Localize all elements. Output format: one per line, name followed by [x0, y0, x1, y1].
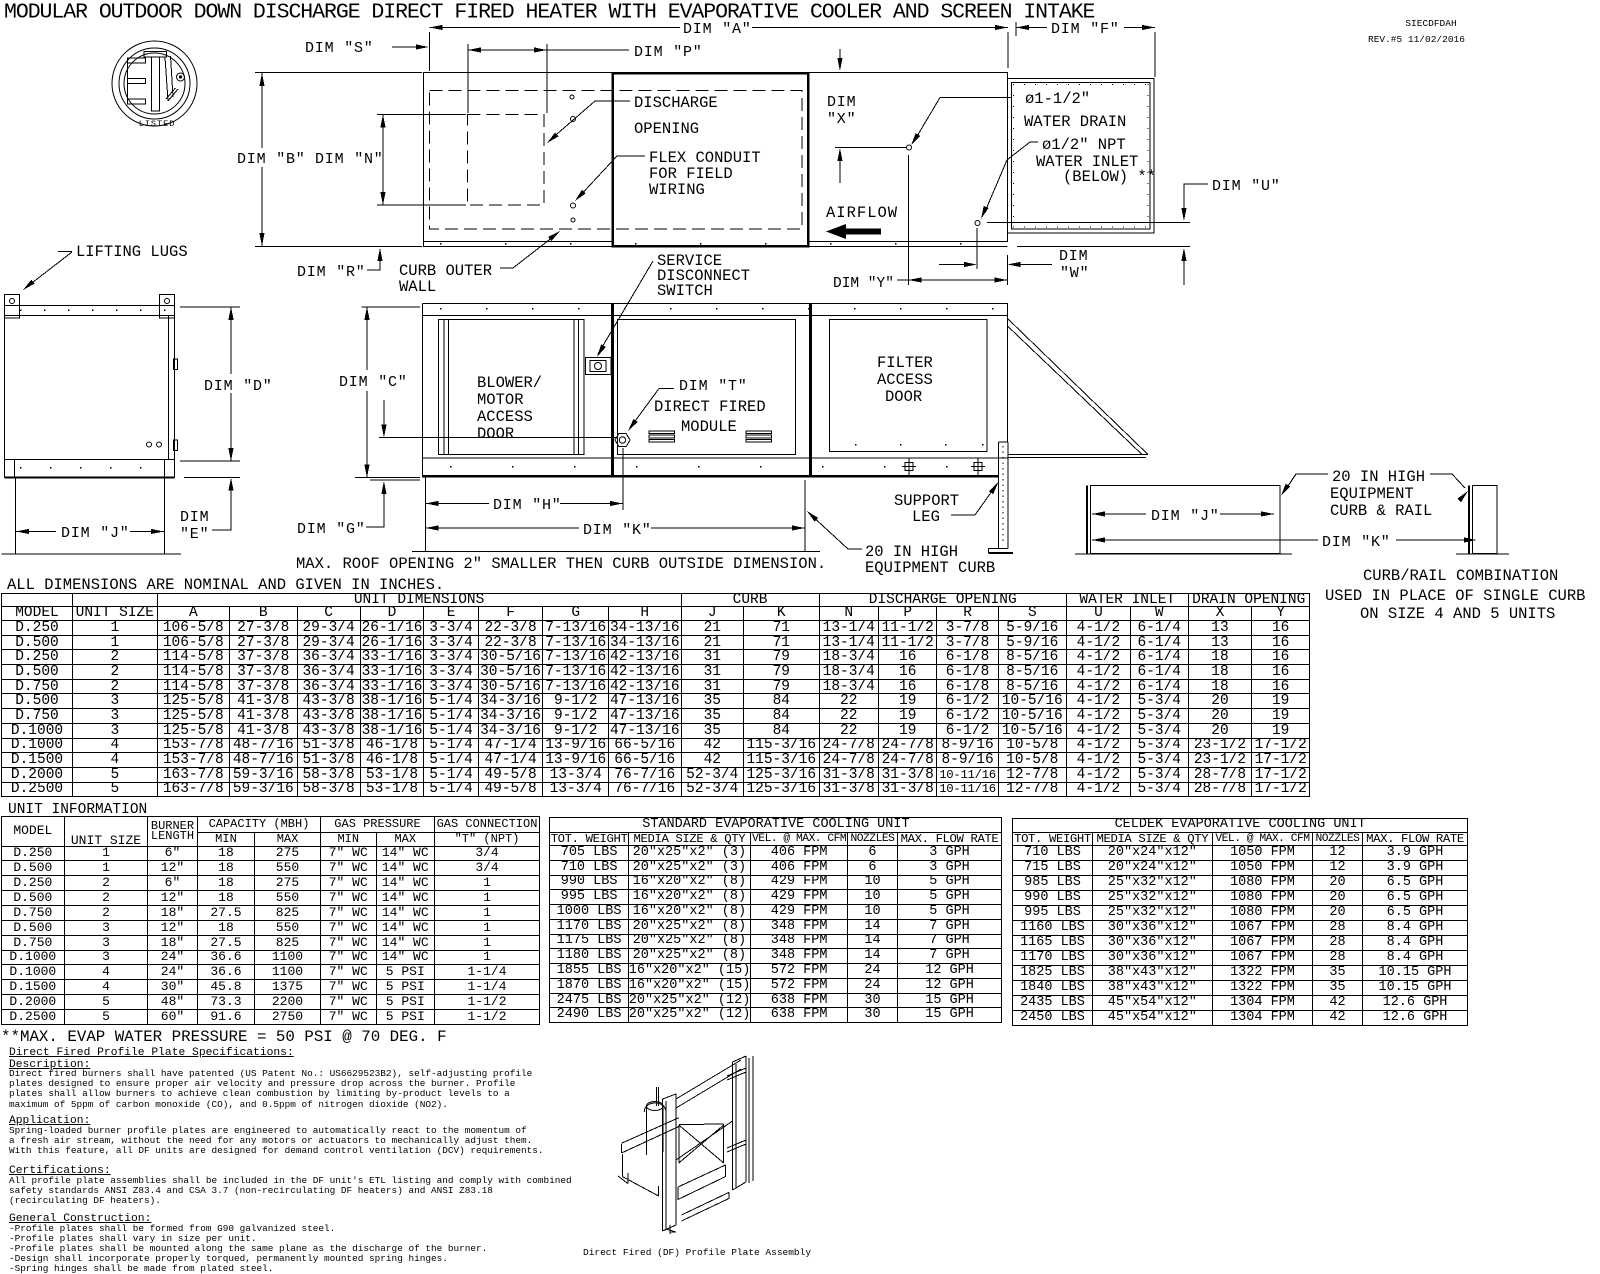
svg-text:DISCHARGE: DISCHARGE	[634, 94, 718, 112]
svg-text:REV.#5 11/02/2016: REV.#5 11/02/2016	[1368, 34, 1465, 45]
svg-text:ACCESS: ACCESS	[877, 371, 933, 389]
svg-text:DIM "A": DIM "A"	[683, 21, 752, 38]
svg-text:ø1-1/2": ø1-1/2"	[1025, 90, 1090, 108]
svg-text:Direct Fired (DF) Profile Plat: Direct Fired (DF) Profile Plate Assembly	[583, 1247, 811, 1258]
svg-text:LISTED: LISTED	[139, 119, 176, 129]
svg-text:MOTOR: MOTOR	[477, 391, 524, 409]
svg-text:DIM "J": DIM "J"	[61, 525, 130, 542]
svg-text:DIM "R": DIM "R"	[297, 264, 366, 281]
svg-text:MAX. ROOF OPENING 2" SMALLER T: MAX. ROOF OPENING 2" SMALLER THEN CURB O…	[296, 555, 826, 573]
svg-text:DOOR: DOOR	[885, 388, 922, 406]
svg-text:EQUIPMENT CURB: EQUIPMENT CURB	[865, 559, 995, 577]
svg-text:DIM: DIM	[180, 509, 209, 526]
svg-text:DIM "C": DIM "C"	[339, 374, 408, 391]
svg-text:DIM "H": DIM "H"	[493, 497, 562, 514]
svg-text:(BELOW) **: (BELOW) **	[1063, 168, 1156, 186]
svg-text:WIRING: WIRING	[649, 181, 705, 199]
svg-text:MODULE: MODULE	[681, 418, 737, 436]
svg-text:EQUIPMENT: EQUIPMENT	[1330, 485, 1414, 503]
svg-text:USED IN PLACE OF SINGLE CURB: USED IN PLACE OF SINGLE CURB	[1325, 587, 1585, 605]
svg-text:DIM "U": DIM "U"	[1212, 178, 1281, 195]
svg-text:OPENING: OPENING	[634, 120, 699, 138]
svg-text:DIM "P": DIM "P"	[634, 44, 703, 61]
svg-text:"E": "E"	[180, 526, 209, 543]
svg-text:DIM "K": DIM "K"	[583, 522, 652, 539]
svg-text:AIRFLOW: AIRFLOW	[826, 204, 898, 222]
svg-text:ALL DIMENSIONS ARE NOMINAL AND: ALL DIMENSIONS ARE NOMINAL AND GIVEN IN …	[7, 576, 444, 594]
svg-text:DIM "N": DIM "N"	[315, 151, 384, 168]
svg-text:WATER DRAIN: WATER DRAIN	[1024, 113, 1126, 131]
svg-text:FILTER: FILTER	[877, 354, 933, 372]
svg-text:DIM "F": DIM "F"	[1051, 21, 1120, 38]
svg-text:SWITCH: SWITCH	[657, 282, 713, 300]
svg-text:DIM "Y": DIM "Y"	[833, 276, 894, 292]
svg-text:"W": "W"	[1060, 265, 1089, 282]
svg-text:DIRECT FIRED: DIRECT FIRED	[654, 398, 766, 416]
svg-text:WALL: WALL	[399, 278, 436, 296]
svg-text:DIM "D": DIM "D"	[204, 378, 273, 395]
svg-text:"X": "X"	[827, 111, 856, 128]
svg-text:ON SIZE 4 AND 5 UNITS: ON SIZE 4 AND 5 UNITS	[1360, 605, 1555, 623]
svg-text:DIM "K": DIM "K"	[1322, 534, 1391, 551]
svg-text:MODULAR OUTDOOR DOWN DISCHARGE: MODULAR OUTDOOR DOWN DISCHARGE DIRECT FI…	[4, 1, 1095, 25]
svg-text:20 IN HIGH: 20 IN HIGH	[1332, 468, 1425, 486]
svg-text:DIM: DIM	[1059, 248, 1088, 265]
svg-text:CURB/RAIL COMBINATION: CURB/RAIL COMBINATION	[1363, 567, 1558, 585]
svg-text:ø1/2" NPT: ø1/2" NPT	[1042, 136, 1126, 154]
svg-text:LIFTING LUGS: LIFTING LUGS	[76, 243, 188, 261]
svg-text:DOOR: DOOR	[477, 425, 514, 443]
svg-text:ACCESS: ACCESS	[477, 408, 533, 426]
svg-text:BLOWER/: BLOWER/	[477, 374, 542, 392]
svg-text:DIM "B": DIM "B"	[237, 151, 306, 168]
svg-text:DIM "S": DIM "S"	[305, 40, 374, 57]
svg-text:CURB & RAIL: CURB & RAIL	[1330, 502, 1432, 520]
svg-text:DIM "G": DIM "G"	[297, 521, 366, 538]
svg-text:DIM "T": DIM "T"	[679, 378, 748, 395]
svg-text:DIM "J": DIM "J"	[1151, 508, 1220, 525]
svg-text:SIECDFDAH: SIECDFDAH	[1405, 18, 1456, 29]
svg-text:LEG: LEG	[912, 508, 940, 526]
svg-text:DIM: DIM	[827, 94, 856, 111]
